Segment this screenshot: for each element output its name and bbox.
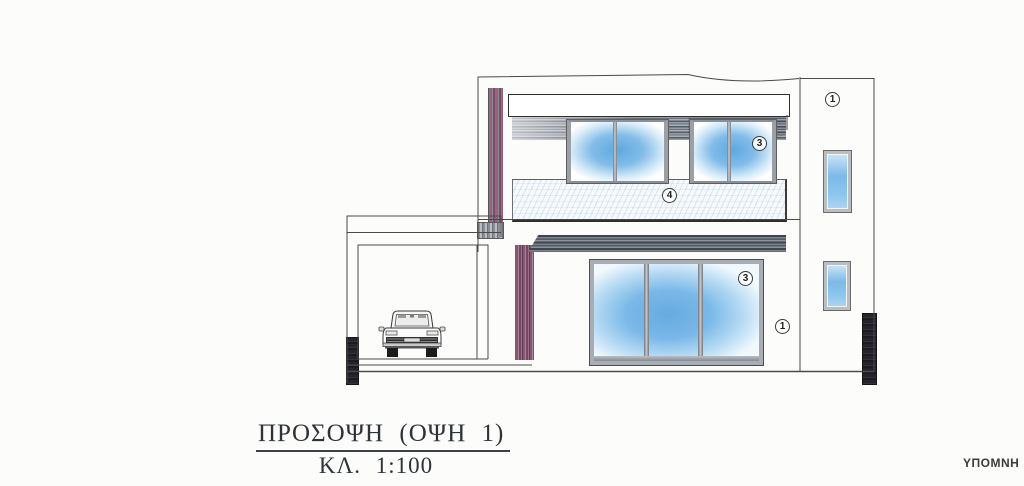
plinth-column-left [346, 337, 359, 385]
window-mullion [613, 122, 617, 181]
marker-window-3-upper: 3 [752, 136, 767, 151]
marker-label: 3 [757, 138, 763, 149]
narrow-window-lower [824, 262, 850, 310]
ground-floor-sliding-door [590, 260, 763, 365]
marker-wall-1-lower: 1 [775, 319, 790, 334]
narrow-window-glass [827, 265, 847, 307]
roof-slab [508, 94, 790, 117]
balcony-slab-edge [528, 235, 786, 252]
elevation-drawing-sheet: 1 3 4 3 1 ΠΡΟΣΟΨΗ (ΟΨΗ 1) ΚΛ. 1:100 ΥΠΟΜ… [0, 0, 1024, 486]
corner-shadow-column [488, 88, 503, 224]
drawing-title: ΠΡΟΣΟΨΗ (ΟΨΗ 1) [256, 420, 510, 452]
balcony-parapet [512, 179, 787, 222]
outline-linework [0, 0, 1024, 486]
car-icon [378, 308, 446, 365]
marker-label: 1 [780, 321, 786, 332]
drawing-scale: ΚΛ. 1:100 [256, 453, 496, 479]
marker-wall-1-upper: 1 [825, 92, 840, 107]
marker-label: 1 [830, 94, 836, 105]
carport-pier-column [515, 245, 534, 360]
window-mullion [727, 122, 731, 181]
plinth-column-right [862, 313, 877, 385]
upper-window-left [567, 120, 668, 183]
marker-label: 4 [667, 190, 673, 201]
narrow-window-upper [824, 151, 851, 212]
narrow-window-glass [827, 154, 848, 209]
upper-window-right [690, 120, 776, 183]
door-mullion [698, 264, 703, 361]
title-block: ΠΡΟΣΟΨΗ (ΟΨΗ 1) ΚΛ. 1:100 [256, 420, 496, 479]
corner-shadow-footing [477, 222, 504, 239]
legend-heading: ΥΠΟΜΝΗ [963, 456, 1019, 470]
door-sill [594, 356, 759, 361]
door-mullion [644, 264, 649, 361]
marker-parapet-4: 4 [662, 188, 677, 203]
marker-door-3: 3 [738, 271, 753, 286]
marker-label: 3 [743, 273, 749, 284]
